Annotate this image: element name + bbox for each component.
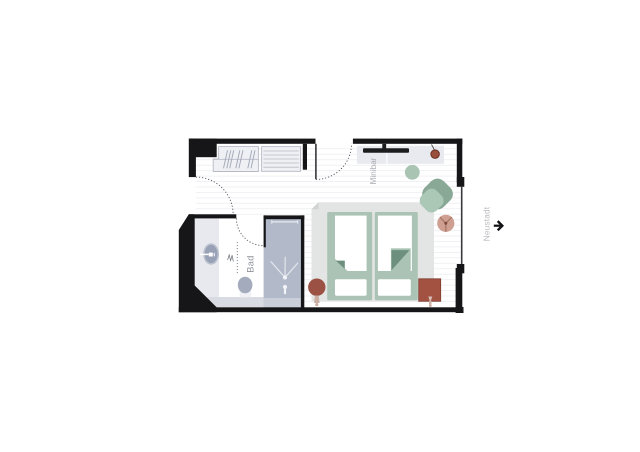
svg-text:Minibar: Minibar (369, 157, 378, 184)
svg-text:Neustadt: Neustadt (482, 206, 491, 241)
svg-text:Bad: Bad (246, 255, 256, 273)
